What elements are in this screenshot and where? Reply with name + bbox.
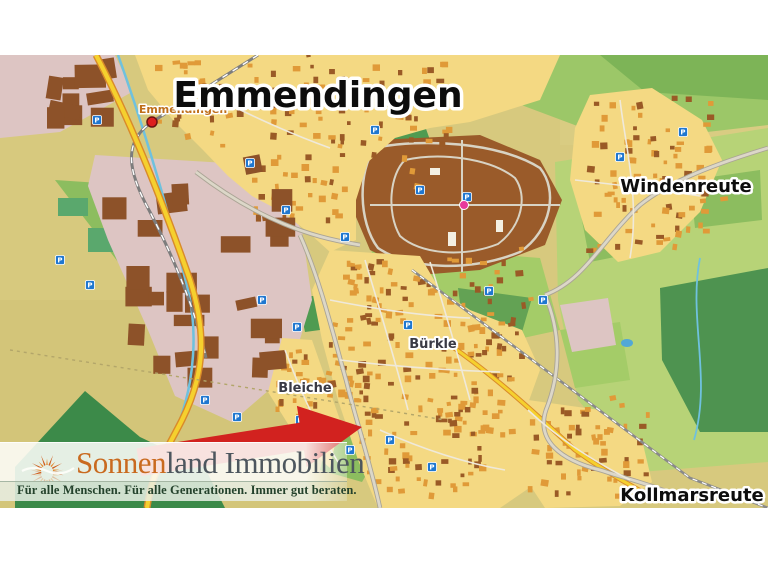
logo-text-accent: Sonnen — [76, 445, 166, 480]
logo-text-rest: land Immobilien — [166, 445, 364, 480]
station-marker — [147, 117, 157, 127]
city-title: Emmendingen — [173, 75, 462, 116]
street-map: PPPPPPPPPPPPPPPPPPPPPP Emmendingen Emmen… — [0, 55, 768, 508]
real-estate-map-image: PPPPPPPPPPPPPPPPPPPPPP Emmendingen Emmen… — [0, 0, 768, 567]
tagline-bar: Für alle Menschen. Für alle Generationen… — [0, 481, 347, 501]
svg-text:P: P — [283, 207, 288, 215]
map-canvas: PPPPPPPPPPPPPPPPPPPPPP Emmendingen Emmen… — [0, 55, 768, 508]
district-label-buerkle: Bürkle — [409, 337, 457, 352]
svg-text:P: P — [259, 297, 264, 305]
bottom-margin — [0, 508, 768, 567]
parking-icon: P — [56, 256, 65, 265]
svg-text:P: P — [294, 324, 299, 332]
svg-text:P: P — [234, 414, 239, 422]
parking-icon: P — [258, 296, 267, 305]
svg-text:P: P — [202, 397, 207, 405]
parking-icon: P — [404, 321, 413, 330]
parking-icon: P — [93, 116, 102, 125]
svg-text:P: P — [247, 160, 252, 168]
parking-icon: P — [679, 128, 688, 137]
svg-text:P: P — [372, 127, 377, 135]
parking-icon: P — [86, 281, 95, 290]
svg-text:P: P — [87, 282, 92, 290]
svg-text:P: P — [429, 464, 434, 472]
svg-text:P: P — [387, 437, 392, 445]
svg-text:P: P — [57, 257, 62, 265]
parking-icon: P — [616, 153, 625, 162]
district-label-bleiche: Bleiche — [278, 381, 332, 396]
svg-text:P: P — [540, 297, 545, 305]
svg-text:P: P — [405, 322, 410, 330]
svg-text:P: P — [680, 129, 685, 137]
logo-text: Sonnenland Immobilien — [76, 445, 364, 481]
hospital-marker — [460, 201, 469, 210]
parking-icon: P — [416, 186, 425, 195]
parking-icon: P — [371, 126, 380, 135]
svg-text:P: P — [342, 234, 347, 242]
svg-text:P: P — [417, 187, 422, 195]
parking-icon: P — [539, 296, 548, 305]
parking-icon: P — [293, 323, 302, 332]
top-margin — [0, 0, 768, 55]
parking-icon: P — [233, 413, 242, 422]
parking-icon: P — [428, 463, 437, 472]
svg-text:P: P — [486, 288, 491, 296]
sun-rays-icon — [19, 441, 77, 483]
tagline-text: Für alle Menschen. Für alle Generationen… — [17, 483, 357, 498]
parking-icon: P — [386, 436, 395, 445]
parking-icon: P — [485, 287, 494, 296]
branding-banner: Sonnenland Immobilien Für alle Menschen.… — [0, 442, 347, 500]
parking-icon: P — [201, 396, 210, 405]
svg-text:P: P — [94, 117, 99, 125]
svg-text:P: P — [617, 154, 622, 162]
parking-icon: P — [282, 206, 291, 215]
logo-row: Sonnenland Immobilien — [0, 442, 347, 482]
district-label-kollmarsreute: Kollmarsreute — [620, 485, 764, 506]
parking-icon: P — [246, 159, 255, 168]
parking-icon: P — [341, 233, 350, 242]
district-label-windenreute: Windenreute — [620, 176, 751, 197]
